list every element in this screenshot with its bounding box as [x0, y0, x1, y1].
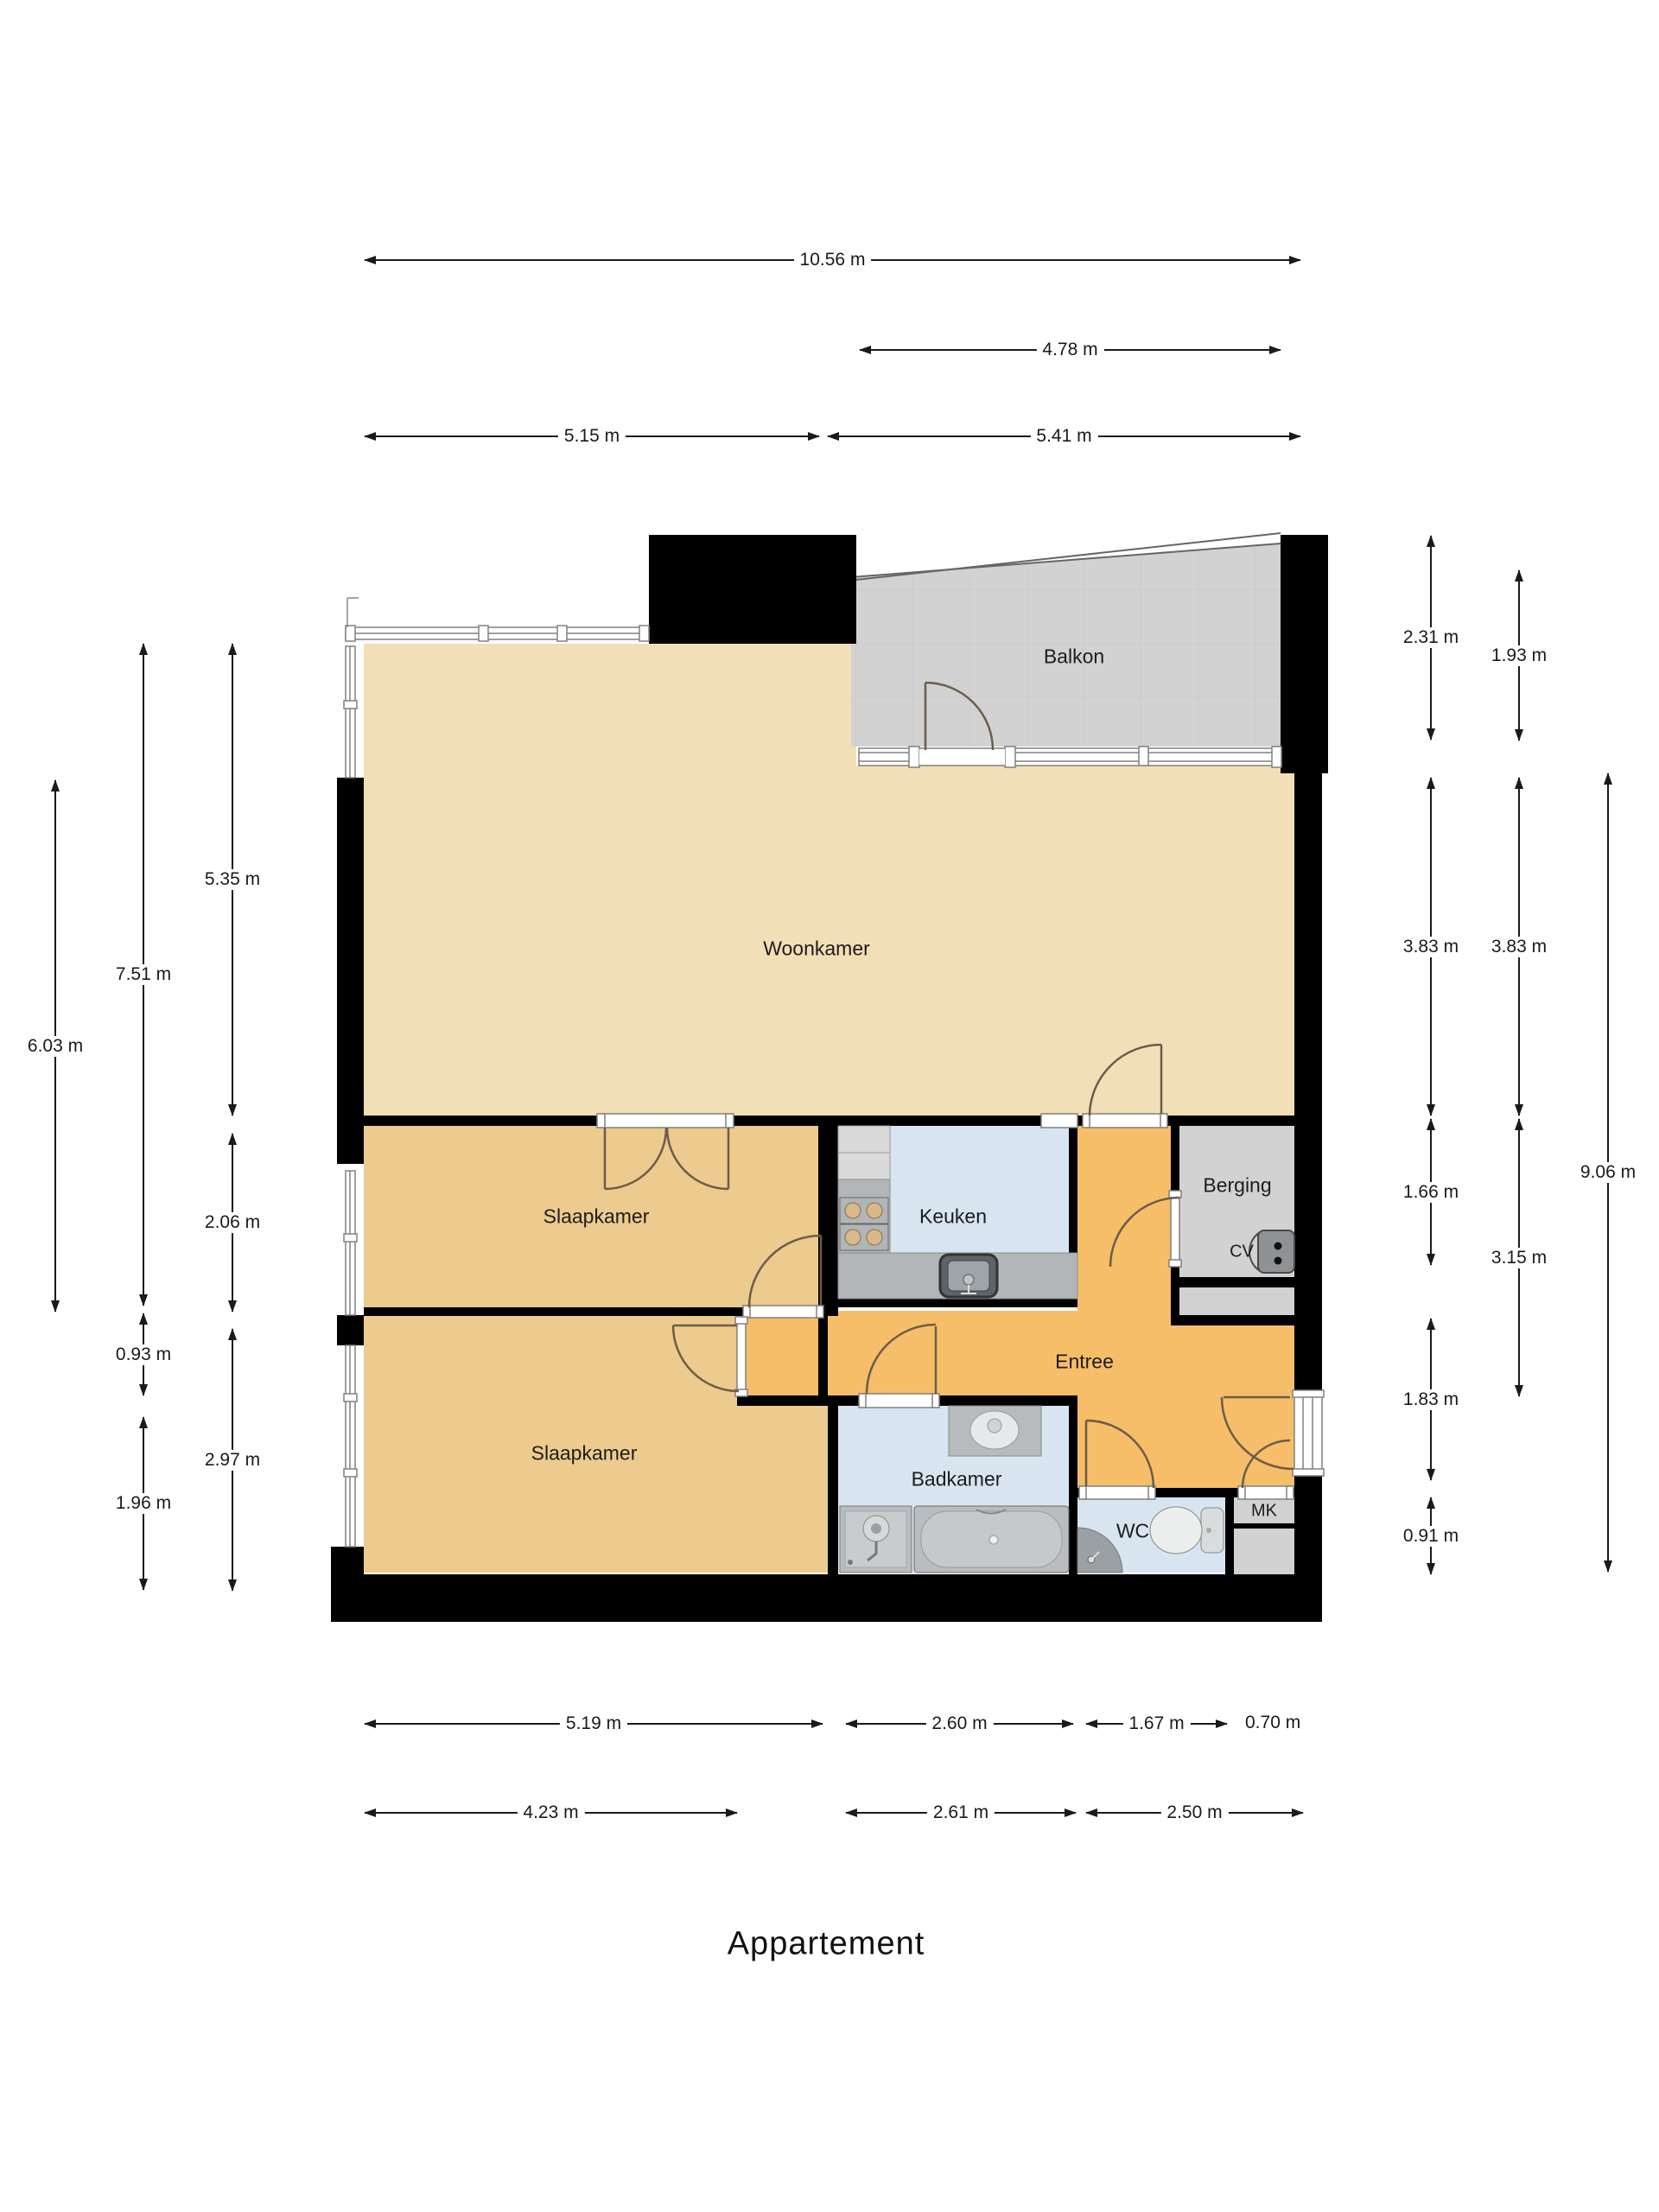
page-title: Appartement: [728, 1926, 925, 1963]
dim-label: 5.19 m: [560, 1713, 627, 1734]
dim-left-093: 0.93 m: [143, 1313, 144, 1395]
shower-icon: [840, 1506, 912, 1573]
room-entree-east: [1171, 1325, 1296, 1488]
bathtub-icon: [914, 1506, 1069, 1573]
dim-bottom-261: 2.61 m: [846, 1812, 1076, 1814]
dim-top-balkon: 4.78 m: [860, 349, 1281, 351]
dim-label: 3.83 m: [1485, 937, 1553, 957]
stove-icon: [840, 1198, 888, 1250]
label-woonkamer: Woonkamer: [763, 938, 870, 961]
label-balkon: Balkon: [1044, 645, 1104, 669]
dim-label: 2.60 m: [925, 1713, 993, 1734]
room-entree-hall: [1077, 1126, 1171, 1488]
label-badkamer: Badkamer: [912, 1468, 1002, 1491]
mk-niche: [1234, 1528, 1294, 1575]
dim-left-603: 6.03 m: [54, 780, 56, 1312]
dim-bottom-423: 4.23 m: [365, 1812, 737, 1814]
label-slaapkamer-1: Slaapkamer: [543, 1205, 650, 1229]
dim-bottom-167: 1.67 m: [1086, 1723, 1227, 1725]
dim-right-383a: 3.83 m: [1430, 778, 1432, 1116]
dim-bottom-070: 0.70 m: [1242, 1713, 1304, 1733]
dim-label: 5.35 m: [199, 869, 266, 890]
dim-right-183: 1.83 m: [1430, 1319, 1432, 1480]
dim-label: 1.67 m: [1122, 1713, 1190, 1734]
label-wc: WC: [1116, 1520, 1149, 1543]
dim-top-left: 5.15 m: [365, 435, 819, 437]
dim-label: 0.93 m: [110, 1344, 177, 1365]
dim-left-751: 7.51 m: [143, 644, 144, 1306]
dim-bottom-260: 2.60 m: [846, 1723, 1073, 1725]
dim-label: 2.31 m: [1397, 627, 1465, 648]
label-slaapkamer-2: Slaapkamer: [531, 1442, 638, 1465]
floorplan-drawing: [0, 0, 1659, 2212]
dim-top-total: 10.56 m: [365, 259, 1300, 261]
dim-top-right: 5.41 m: [828, 435, 1300, 437]
dim-label: 2.50 m: [1160, 1802, 1228, 1823]
dim-label: 1.83 m: [1397, 1389, 1465, 1410]
dim-label: 0.91 m: [1397, 1526, 1465, 1547]
dim-label: 2.06 m: [199, 1212, 266, 1233]
washbasin-icon: [949, 1406, 1041, 1456]
dim-label: 2.61 m: [927, 1802, 995, 1823]
dim-right-193: 1.93 m: [1518, 570, 1520, 741]
label-entree: Entree: [1055, 1351, 1114, 1374]
dim-right-383b: 3.83 m: [1518, 778, 1520, 1116]
label-keuken: Keuken: [919, 1205, 987, 1229]
dim-left-535: 5.35 m: [232, 644, 233, 1116]
dim-right-906: 9.06 m: [1607, 773, 1609, 1572]
label-mk: MK: [1251, 1502, 1277, 1522]
dim-label: 5.41 m: [1030, 426, 1097, 447]
label-cv: CV: [1230, 1243, 1254, 1262]
dim-right-091: 0.91 m: [1430, 1497, 1432, 1574]
dim-label: 4.78 m: [1036, 340, 1103, 360]
toilet-icon: [1150, 1507, 1224, 1554]
dim-label: 1.96 m: [110, 1493, 177, 1514]
berging-niche: [1179, 1287, 1294, 1315]
dim-label: 2.97 m: [199, 1450, 266, 1471]
dim-bottom-250: 2.50 m: [1086, 1812, 1303, 1814]
dim-label: 3.15 m: [1485, 1248, 1553, 1268]
floorplan-page: Balkon Woonkamer Slaapkamer Keuken Bergi…: [0, 0, 1659, 2212]
dim-label: 7.51 m: [110, 964, 177, 985]
dim-label: 6.03 m: [22, 1036, 89, 1057]
dim-left-206: 2.06 m: [232, 1134, 233, 1312]
dim-label: 5.15 m: [558, 426, 626, 447]
dim-right-315: 3.15 m: [1518, 1119, 1520, 1396]
dim-right-231: 2.31 m: [1430, 536, 1432, 740]
dim-label: 1.66 m: [1397, 1182, 1465, 1203]
room-entree-corridor: [741, 1311, 1077, 1400]
dim-label: 9.06 m: [1574, 1162, 1642, 1183]
dim-right-166: 1.66 m: [1430, 1119, 1432, 1265]
dim-bottom-519: 5.19 m: [365, 1723, 823, 1725]
dim-label: 3.83 m: [1397, 937, 1465, 957]
dim-left-196: 1.96 m: [143, 1417, 144, 1590]
dim-label: 4.23 m: [517, 1802, 584, 1823]
dim-left-297: 2.97 m: [232, 1329, 233, 1591]
dim-label: 1.93 m: [1485, 645, 1553, 666]
dim-label: 10.56 m: [794, 250, 872, 270]
kitchen-sink-icon: [940, 1255, 997, 1297]
label-berging: Berging: [1203, 1174, 1271, 1198]
